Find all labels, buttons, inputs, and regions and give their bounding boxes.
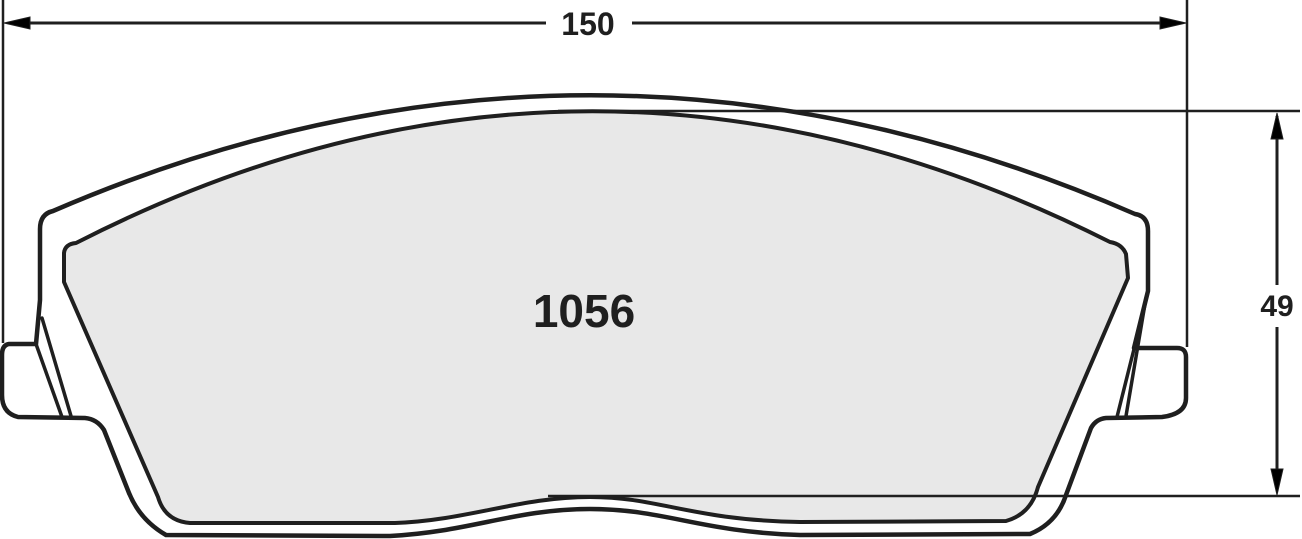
brake-pad-dimension-drawing: 150 49 1056 <box>0 0 1302 539</box>
height-arrow-up-icon <box>1271 113 1283 139</box>
part-number-label: 1056 <box>533 285 635 337</box>
width-dimension-value: 150 <box>561 6 614 42</box>
drawing-lines: 150 49 1056 <box>2 0 1300 536</box>
width-arrow-left-icon <box>4 17 30 29</box>
height-arrow-down-icon <box>1271 469 1283 495</box>
brake-pad-diagram-canvas: 150 49 1056 <box>0 0 1302 539</box>
width-arrow-right-icon <box>1160 17 1186 29</box>
height-dimension-value: 49 <box>1260 290 1293 323</box>
